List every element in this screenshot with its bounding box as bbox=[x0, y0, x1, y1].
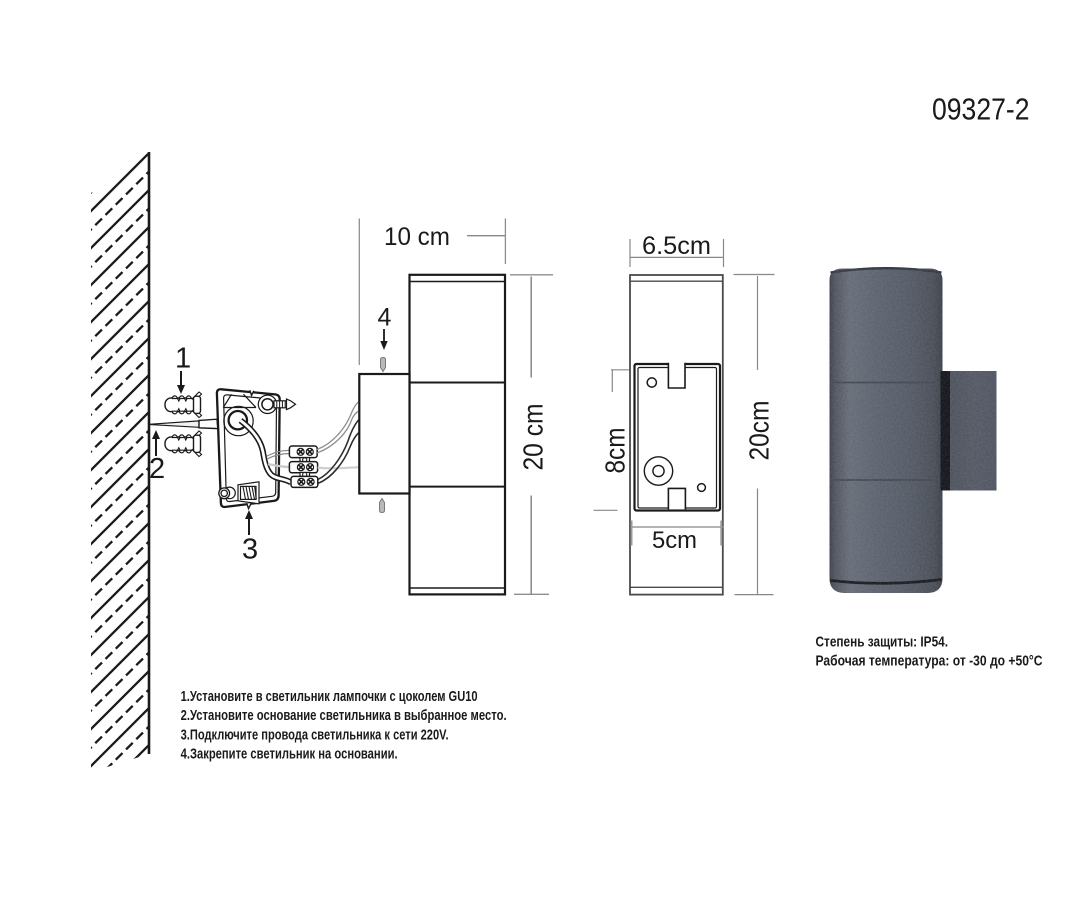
svg-text:3.Подключите провода светильни: 3.Подключите провода светильника к сети … bbox=[181, 726, 449, 743]
svg-text:Степень защиты: IP54.: Степень защиты: IP54. bbox=[816, 634, 949, 651]
svg-text:09327-2: 09327-2 bbox=[932, 92, 1030, 127]
svg-text:8cm: 8cm bbox=[600, 428, 631, 474]
svg-text:4.Закрепите светильник на осно: 4.Закрепите светильник на основании. bbox=[181, 746, 398, 763]
svg-text:10 cm: 10 cm bbox=[384, 223, 450, 251]
svg-text:20cm: 20cm bbox=[744, 401, 775, 461]
svg-text:6.5cm: 6.5cm bbox=[642, 232, 711, 260]
svg-text:5cm: 5cm bbox=[652, 527, 697, 554]
svg-text:4: 4 bbox=[378, 304, 392, 332]
svg-text:2.Установите основание светиль: 2.Установите основание светильника в выб… bbox=[181, 707, 507, 724]
svg-text:1: 1 bbox=[175, 343, 191, 375]
svg-text:3: 3 bbox=[242, 534, 258, 566]
svg-text:1.Установите в светильник ламп: 1.Установите в светильник лампочки с цок… bbox=[181, 688, 478, 705]
svg-text:2: 2 bbox=[149, 453, 165, 485]
svg-text:Рабочая температура: от -30 до: Рабочая температура: от -30 до +50°C bbox=[816, 653, 1043, 670]
svg-text:20 cm: 20 cm bbox=[518, 404, 549, 471]
